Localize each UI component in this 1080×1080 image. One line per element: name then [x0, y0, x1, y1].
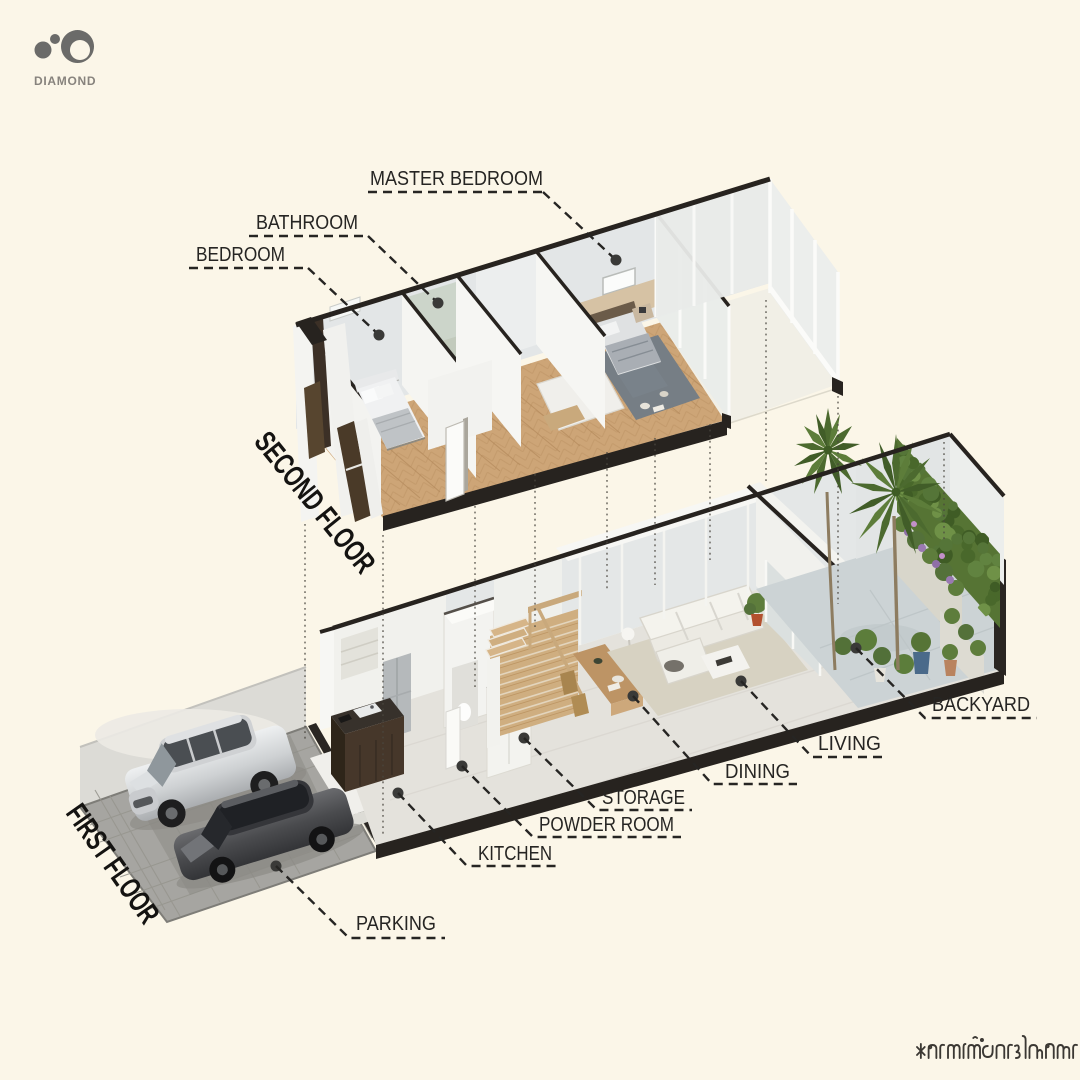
svg-text:PARKING: PARKING — [356, 913, 436, 935]
svg-text:MASTER BEDROOM: MASTER BEDROOM — [370, 168, 543, 190]
svg-text:STORAGE: STORAGE — [602, 787, 685, 809]
svg-text:DINING: DINING — [725, 761, 790, 783]
svg-text:BEDROOM: BEDROOM — [196, 244, 285, 266]
svg-text:BATHROOM: BATHROOM — [256, 212, 358, 234]
svg-text:POWDER ROOM: POWDER ROOM — [539, 814, 674, 836]
svg-text:KITCHEN: KITCHEN — [478, 843, 552, 865]
svg-text:LIVING: LIVING — [818, 733, 881, 755]
svg-text:BACKYARD: BACKYARD — [932, 694, 1030, 716]
svg-text:DIAMOND: DIAMOND — [34, 74, 96, 88]
